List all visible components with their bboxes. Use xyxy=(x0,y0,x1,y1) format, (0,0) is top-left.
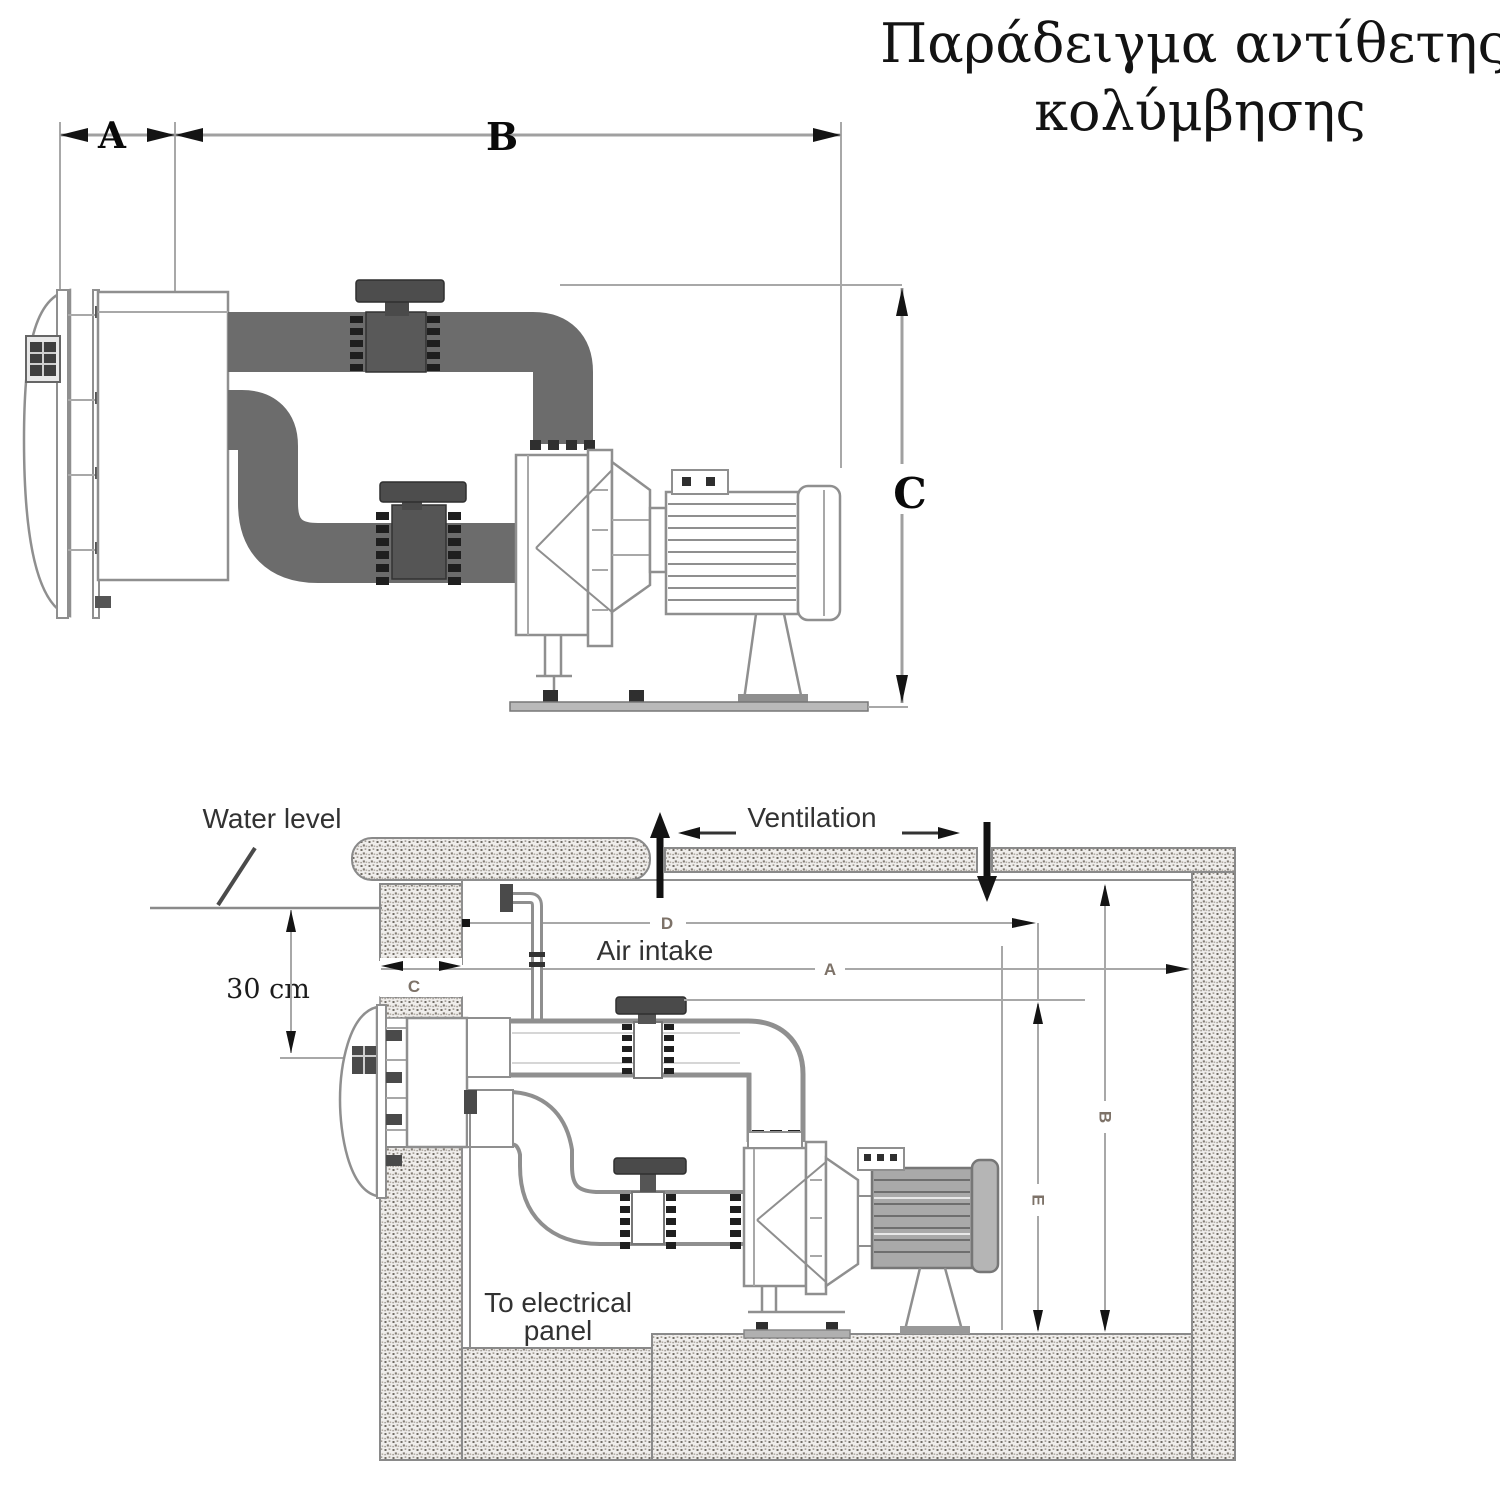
pump-diffuser-cone xyxy=(612,462,650,612)
fixture-body-top xyxy=(98,292,228,580)
pit-floor xyxy=(462,1348,652,1460)
installation-diagram: Παράδειγμα αντίθετης κολύμβησης A B xyxy=(0,0,1500,1500)
pool-wall xyxy=(380,884,462,960)
manual-page: Παράδειγμα αντίθετης κολύμβησης A B xyxy=(0,0,1500,1500)
dim-label-a-bottom: A xyxy=(824,960,836,979)
title-line-2: κολύμβησης xyxy=(1034,80,1365,143)
dim-label-c-wall: C xyxy=(408,977,420,996)
pump-strainer-housing xyxy=(516,455,588,635)
dim-label-c-top: C xyxy=(893,469,926,518)
dim-label-b-top: B xyxy=(486,114,518,159)
pump-base-plate xyxy=(510,702,868,711)
dimension-a-bottom: C A xyxy=(380,958,1190,997)
valve-handle-icon xyxy=(614,1158,686,1174)
pump-bottom xyxy=(730,1132,998,1338)
electrical-label-line2: panel xyxy=(524,1315,593,1346)
dimension-b-bottom: B xyxy=(1096,884,1115,1332)
valve-handle-icon xyxy=(356,280,444,302)
electrical-note: To electrical panel xyxy=(484,1287,632,1346)
electrical-label-line1: To electrical xyxy=(484,1287,632,1318)
ventilation-label: Ventilation xyxy=(747,802,876,833)
offset-label: 30 cm xyxy=(226,974,310,1005)
pool-coping xyxy=(352,838,650,880)
pump-plinth xyxy=(652,1334,1192,1460)
dim-label-a-top: A xyxy=(97,115,127,157)
water-level-leader xyxy=(218,848,255,905)
dim-label-b-bottom: B xyxy=(1096,1111,1115,1123)
depth-offset: 30 cm xyxy=(226,910,352,1058)
top-diagram: A B xyxy=(24,114,934,711)
pit-ceiling-slab xyxy=(665,848,977,872)
pit-right-wall xyxy=(1192,872,1235,1460)
title-line-1: Παράδειγμα αντίθετης xyxy=(880,12,1500,75)
pump-top xyxy=(510,450,868,711)
bottom-diagram: Water level Ventilation 30 cm xyxy=(150,802,1235,1460)
fixture-body-bottom xyxy=(407,1018,467,1147)
return-pipe xyxy=(228,420,518,553)
pump-diffuser-cone xyxy=(826,1158,858,1286)
pump-base-plate xyxy=(744,1330,850,1338)
jet-fixture-top xyxy=(24,290,228,618)
valve-handle-icon xyxy=(616,997,686,1014)
air-intake-cap xyxy=(500,884,513,912)
water-level: Water level xyxy=(150,803,382,908)
valve-handle-icon xyxy=(380,482,466,502)
air-intake-label: Air intake xyxy=(597,935,714,966)
water-level-label: Water level xyxy=(202,803,341,834)
page-title: Παράδειγμα αντίθετης κολύμβησης xyxy=(880,12,1500,143)
pit-ceiling-slab xyxy=(992,848,1235,872)
dim-label-e: E xyxy=(1029,1194,1048,1205)
dim-label-d: D xyxy=(661,914,673,933)
motor-terminal-box xyxy=(672,470,728,494)
